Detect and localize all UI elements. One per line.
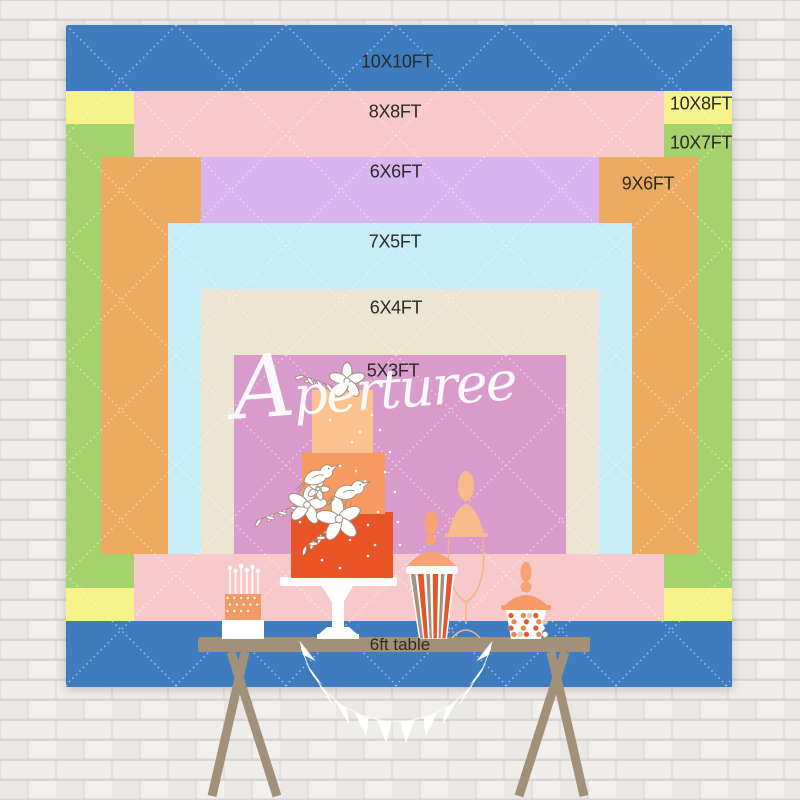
size-label-8x8ft: 8X8FT <box>369 102 422 123</box>
table-size-label: 6ft table <box>370 635 431 655</box>
size-label-6x6ft: 6X6FT <box>370 162 423 183</box>
size-label-6x4ft: 6X4FT <box>370 298 423 319</box>
size-label-10x7ft: 10X7FT <box>670 133 732 154</box>
size-label-10x10ft: 10X10FT <box>361 52 433 73</box>
size-label-9x6ft: 9X6FT <box>622 174 675 195</box>
brand-watermark: Aperturee <box>229 320 518 439</box>
size-label-10x8ft: 10X8FT <box>670 94 732 115</box>
size-label-7x5ft: 7X5FT <box>369 232 422 253</box>
